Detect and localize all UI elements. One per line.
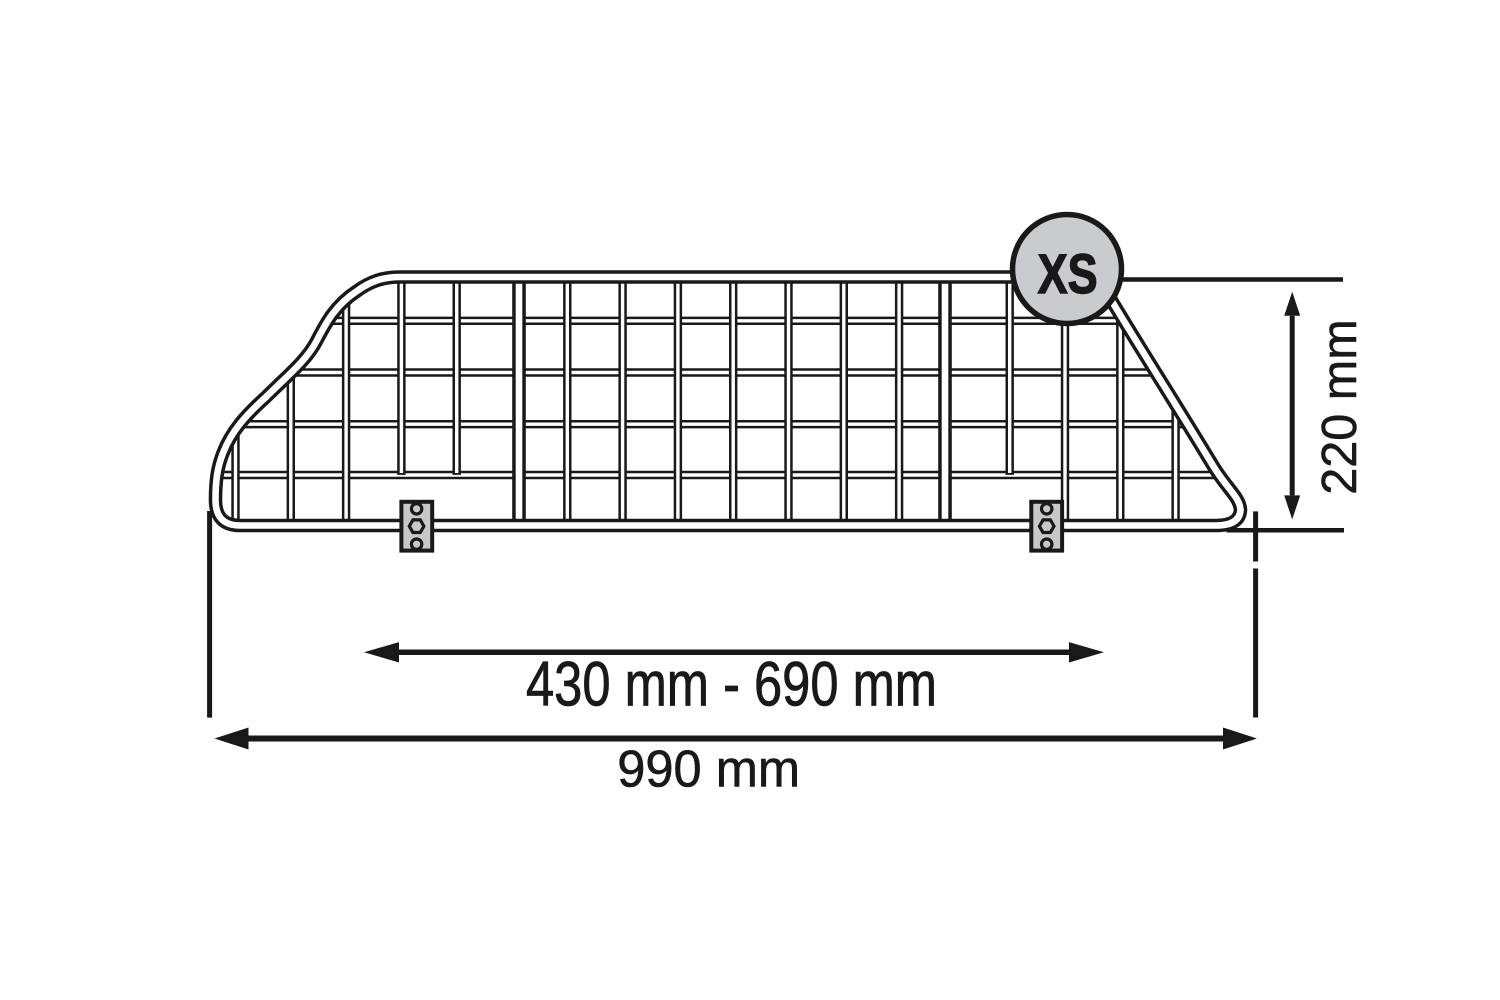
svg-text:430 mm - 690 mm: 430 mm - 690 mm xyxy=(526,650,937,720)
svg-text:XS: XS xyxy=(1038,243,1098,305)
svg-text:220 mm: 220 mm xyxy=(1312,319,1367,495)
svg-text:990 mm: 990 mm xyxy=(617,740,800,798)
